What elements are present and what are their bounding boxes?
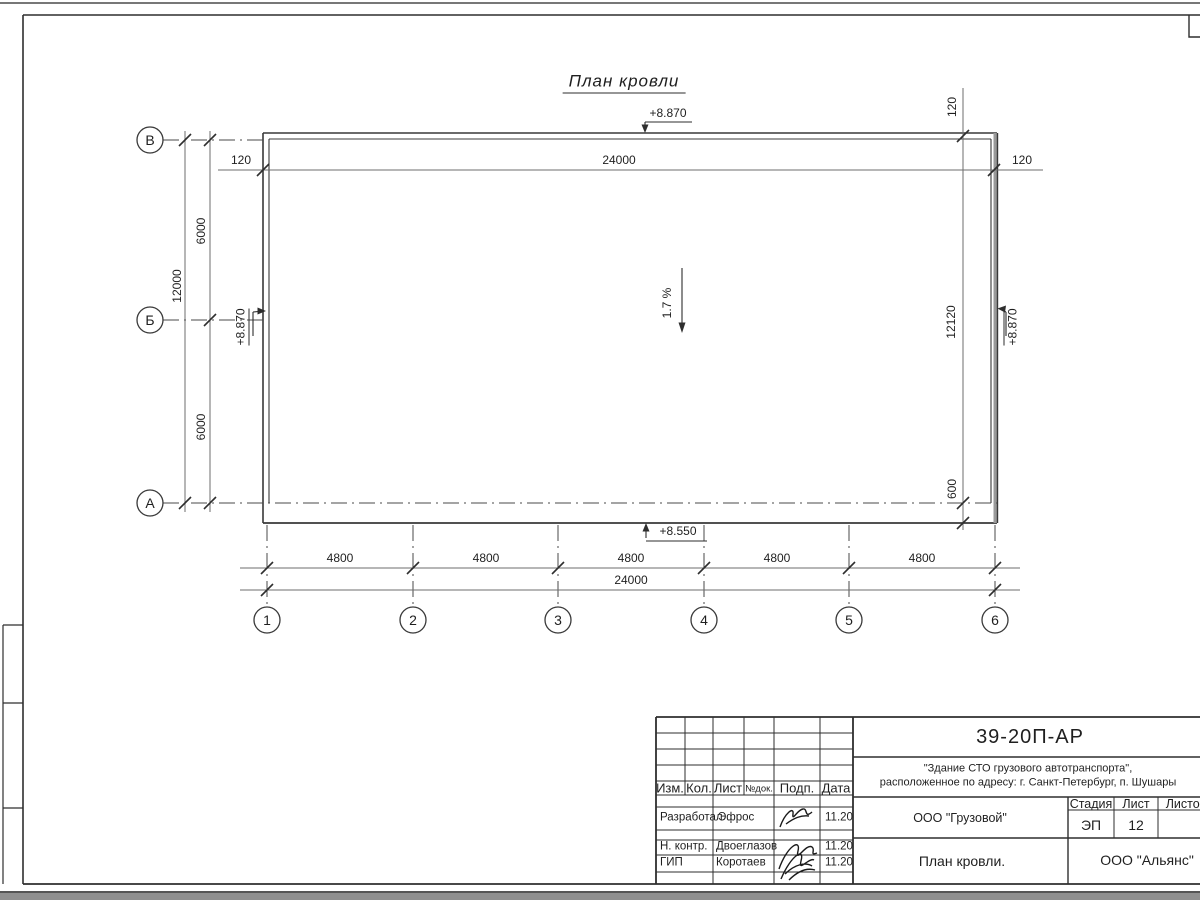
axis-col-5: 5 — [845, 613, 853, 627]
project-name-line1: "Здание СТО грузового автотранспорта", — [924, 764, 1133, 775]
rev-header-list: Лист — [714, 782, 742, 795]
dim-right-total: 12120 — [945, 305, 957, 338]
doc-number: 39-20П-АР — [976, 727, 1084, 747]
rev-header-data: Дата — [822, 782, 851, 795]
axis-col-2: 2 — [409, 613, 417, 627]
axis-col-1: 1 — [263, 613, 271, 627]
elevation-top: +8.870 — [649, 107, 686, 119]
dim-bottom-segment: 4800 — [909, 552, 936, 564]
signature-strokes — [779, 809, 817, 880]
dim-left-span-lower: 6000 — [195, 414, 207, 441]
sig-role: ГИП — [660, 857, 683, 869]
dim-bottom-segment: 4800 — [764, 552, 791, 564]
sheet-label: Лист — [1122, 798, 1149, 811]
dim-top-right-vertical: 120 — [946, 97, 958, 117]
sig-role: Разработал — [660, 812, 723, 824]
roof-plan-sheet: План кровли +8.870 +8.550 +8.870 +8.870 … — [0, 0, 1200, 900]
sheet-title: План кровли. — [919, 854, 1005, 868]
sig-name: Эфрос — [718, 812, 754, 824]
dim-bottom-segment: 4800 — [473, 552, 500, 564]
sig-date: 11.20 — [825, 841, 853, 853]
sig-date: 11.20 — [825, 812, 853, 824]
stage-value: ЭП — [1081, 818, 1101, 832]
sheets-label: Листов — [1166, 798, 1200, 811]
sig-date: 11.20 — [825, 857, 853, 869]
rev-header-podp: Подп. — [780, 782, 815, 795]
axis-col-4: 4 — [700, 613, 708, 627]
elevation-bottom: +8.550 — [659, 525, 696, 537]
dim-top-offset-right: 120 — [1012, 154, 1032, 166]
drawing-title: План кровли — [563, 73, 686, 94]
slope-label: 1.7 % — [661, 288, 673, 319]
rev-header-izm: Изм. — [656, 782, 684, 795]
axis-row-a: А — [145, 496, 154, 510]
elevation-left: +8.870 — [235, 308, 250, 345]
dim-top-total: 24000 — [602, 154, 635, 166]
axis-col-6: 6 — [991, 613, 999, 627]
dim-right-overhang: 600 — [946, 479, 958, 499]
client-name: ООО "Грузовой" — [913, 812, 1007, 825]
dim-bottom-segment: 4800 — [327, 552, 354, 564]
dim-left-total: 12000 — [171, 269, 183, 302]
sig-role: Н. контр. — [660, 841, 707, 853]
rev-header-ndok: №док. — [745, 784, 773, 794]
axis-row-v: В — [145, 133, 154, 147]
project-name-line2: расположенное по адресу: г. Санкт-Петерб… — [880, 778, 1176, 789]
page-bottom-bar — [0, 891, 1200, 900]
axis-row-b: Б — [145, 313, 154, 327]
sig-name: Коротаев — [716, 857, 766, 869]
elevation-right: +8.870 — [1004, 308, 1019, 345]
rev-header-kol: Кол. — [686, 782, 712, 795]
sig-name: Двоеглазов — [716, 841, 777, 853]
dim-bottom-total: 24000 — [614, 574, 647, 586]
dim-left-span-upper: 6000 — [195, 218, 207, 245]
dim-top-offset-left: 120 — [231, 154, 251, 166]
axis-col-3: 3 — [554, 613, 562, 627]
dim-bottom-segment: 4800 — [618, 552, 645, 564]
sheet-value: 12 — [1128, 818, 1144, 832]
company-name: ООО "Альянс" — [1100, 853, 1194, 867]
stage-label: Стадия — [1070, 798, 1113, 811]
